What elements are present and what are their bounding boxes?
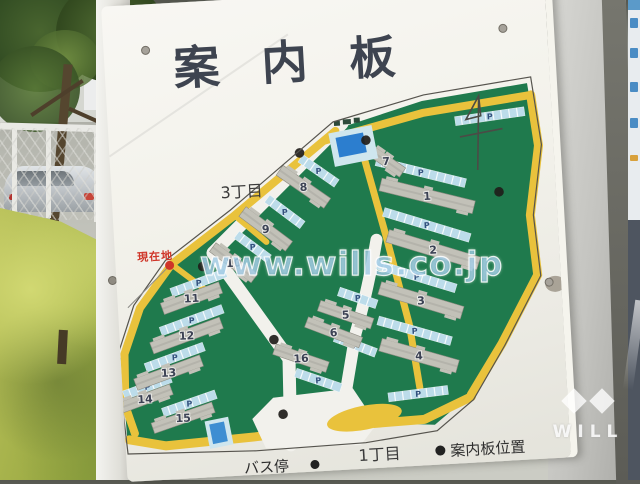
building-number: 3 xyxy=(417,294,425,307)
district-label-1chome: 1丁目 xyxy=(358,444,401,465)
parking-label: P xyxy=(172,353,178,362)
building-number: 16 xyxy=(293,352,309,366)
board-position-legend: 案内板位置 xyxy=(450,438,526,460)
current-location-label: 現在地 xyxy=(137,248,174,264)
parking-label: P xyxy=(315,376,321,385)
parking-label: P xyxy=(189,316,195,325)
board-title-char: 案 xyxy=(172,39,222,96)
bus-stop-label: バス停 xyxy=(244,457,290,477)
parking-label: P xyxy=(487,112,493,121)
signboard-blue-chip xyxy=(630,118,638,128)
parking-label: P xyxy=(195,279,201,288)
board-position-dot-icon xyxy=(435,445,446,456)
signboard-blue-chip xyxy=(630,48,638,58)
signboard-blue-chip xyxy=(630,18,638,28)
building-number: 7 xyxy=(382,155,390,168)
building-number: 2 xyxy=(429,243,437,256)
building-number: 15 xyxy=(175,411,191,425)
parking-label: P xyxy=(282,208,288,217)
board-title-char: 内 xyxy=(260,34,309,90)
building-number: 10 xyxy=(226,256,242,270)
building-number: 6 xyxy=(329,326,338,339)
parking-label: P xyxy=(418,168,424,177)
building-number: 1 xyxy=(423,190,431,203)
board-artwork: PPPPPPPPPPPPPPPPPP 123456789101112131415… xyxy=(101,0,571,482)
small-post-in-grass xyxy=(57,330,68,364)
building-number: 8 xyxy=(299,181,307,194)
parking-label: P xyxy=(411,327,417,336)
parking-label: P xyxy=(315,167,321,176)
building-number: 12 xyxy=(179,329,195,343)
signboard-orange-chip xyxy=(630,155,638,161)
district-label-3chome: 3丁目 xyxy=(220,181,263,202)
parking-label: P xyxy=(355,294,361,303)
parking-label: P xyxy=(413,272,419,281)
parking-label: P xyxy=(250,243,256,252)
building-number: 13 xyxy=(161,366,177,380)
parking-label: P xyxy=(424,221,430,230)
parking-label: P xyxy=(415,390,421,399)
adjacent-signboard xyxy=(628,0,640,480)
building-number: 4 xyxy=(415,349,424,362)
building-number: 9 xyxy=(262,223,270,236)
bus-stop-dot-icon xyxy=(310,460,319,469)
board-title-char: 板 xyxy=(348,29,397,85)
building-number: 14 xyxy=(137,392,153,406)
information-board: PPPPPPPPPPPPPPPPPP 123456789101112131415… xyxy=(101,0,571,482)
signboard-blue-chip xyxy=(630,82,638,92)
parking-label: P xyxy=(186,399,192,408)
building-number: 5 xyxy=(341,308,349,321)
building-number: 11 xyxy=(183,292,199,306)
